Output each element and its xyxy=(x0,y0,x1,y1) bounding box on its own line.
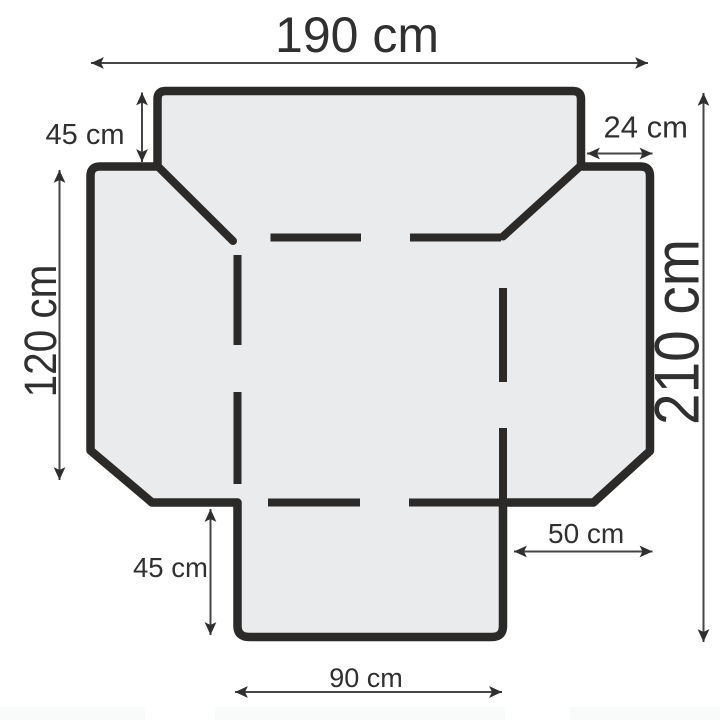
svg-text:45 cm: 45 cm xyxy=(46,119,125,151)
svg-text:90 cm: 90 cm xyxy=(329,663,403,693)
svg-text:45 cm: 45 cm xyxy=(133,552,208,583)
svg-text:50 cm: 50 cm xyxy=(548,518,624,549)
svg-text:24 cm: 24 cm xyxy=(604,110,688,145)
svg-text:190 cm: 190 cm xyxy=(275,7,439,63)
svg-text:120 cm: 120 cm xyxy=(16,265,66,398)
svg-text:210 cm: 210 cm xyxy=(642,239,712,425)
